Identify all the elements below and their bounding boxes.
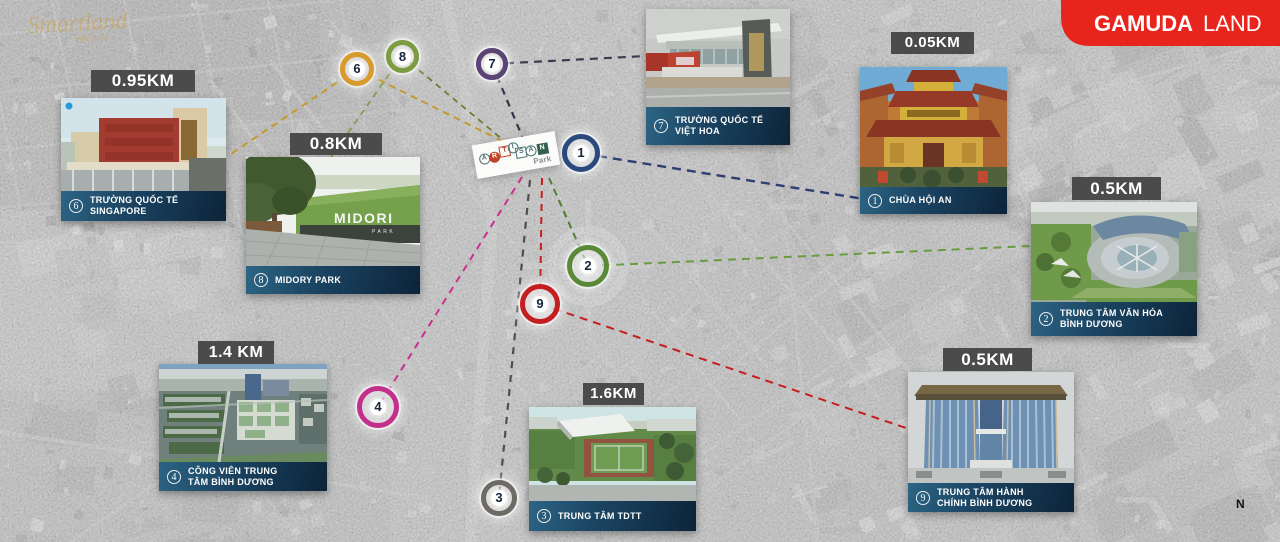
svg-text:GAMUDA: GAMUDA — [1094, 11, 1193, 36]
svg-text:LAND: LAND — [1203, 11, 1262, 36]
